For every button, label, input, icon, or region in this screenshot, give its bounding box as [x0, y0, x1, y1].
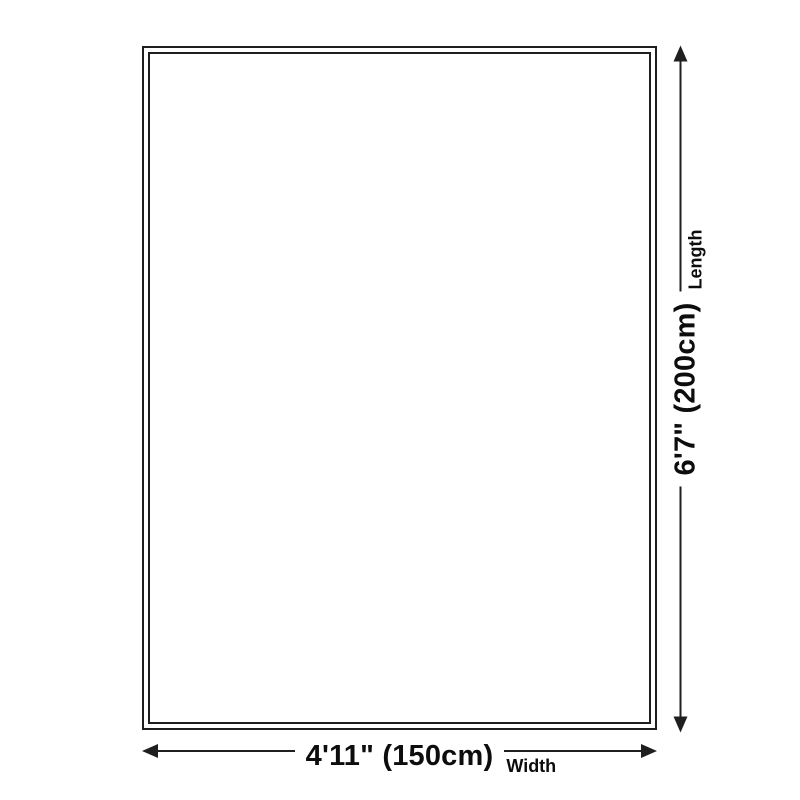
length-value: 6'7" (200cm): [669, 303, 702, 476]
width-dimension-arrow: 4'11" (150cm) Width: [142, 736, 657, 766]
product-rectangle-inner-border: [148, 52, 651, 724]
length-dimension-line-end: Length: [680, 61, 682, 291]
size-diagram: 4'11" (150cm) Width 6'7" (200cm) Length: [0, 0, 800, 800]
width-label: Width: [506, 756, 556, 777]
arrowhead-right-icon: [641, 744, 657, 758]
product-rectangle-outer-border: [142, 46, 657, 730]
width-value: 4'11" (150cm): [306, 740, 494, 773]
length-dimension-line-start: [680, 486, 682, 716]
length-label: Length: [686, 230, 707, 290]
length-dimension-arrow: 6'7" (200cm) Length: [666, 46, 696, 733]
width-dimension-line-end: Width: [504, 750, 641, 752]
arrowhead-left-icon: [142, 744, 158, 758]
width-dimension-line-start: [158, 750, 295, 752]
arrowhead-up-icon: [674, 45, 688, 61]
arrowhead-down-icon: [674, 717, 688, 733]
